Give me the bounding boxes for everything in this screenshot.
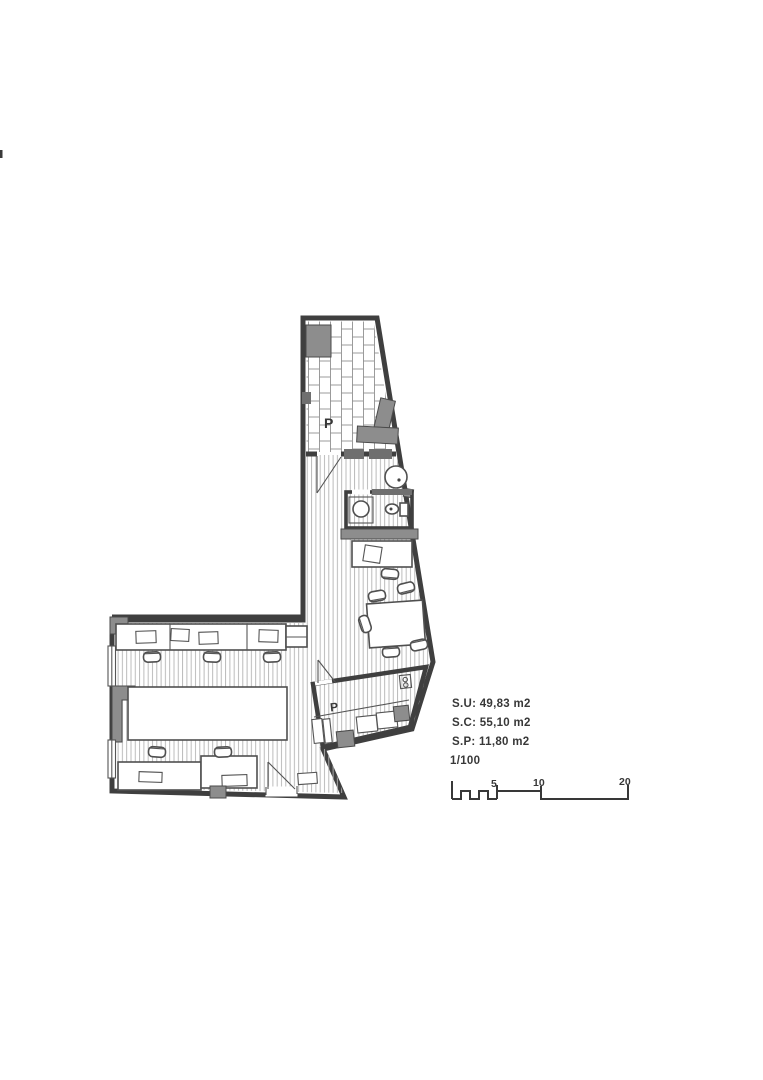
scale-battlement [452, 791, 497, 799]
counter-desk [116, 624, 286, 650]
desk [352, 541, 412, 567]
large-table [128, 687, 287, 740]
wall-pier [210, 786, 226, 798]
door-gap [266, 787, 297, 796]
scanned-floor-plan-page: P [0, 0, 763, 1080]
chair [148, 746, 166, 757]
bottom-desk [118, 762, 201, 790]
wall-segment [369, 449, 392, 459]
bottom-desk [201, 756, 257, 788]
sink-icon [353, 501, 369, 517]
useful-area-text: S.U: 49,83 m2 [452, 698, 531, 710]
chair [368, 590, 386, 603]
patio-label: P [329, 700, 338, 715]
chair [382, 646, 400, 657]
fixture [393, 705, 409, 721]
planter [306, 325, 331, 357]
chair [214, 747, 231, 758]
patio-area-text: S.P: 11,80 m2 [452, 736, 529, 748]
scale-label-20: 20 [619, 776, 631, 788]
wall-segment [344, 449, 364, 459]
fixture [356, 715, 378, 733]
scale-label-10: 10 [533, 777, 545, 789]
scan-speck [0, 150, 3, 158]
wall-pier [302, 392, 311, 404]
planter [357, 426, 399, 444]
terrace-label: P [324, 415, 333, 431]
fixture [336, 730, 355, 748]
built-area-text: S.C: 55,10 m2 [452, 717, 531, 729]
chair [143, 652, 160, 663]
scale-bar: 5 10 20 [452, 776, 631, 799]
toilet-tank [400, 503, 408, 516]
scale-line [497, 785, 628, 799]
round-table-icon [385, 466, 407, 488]
fixture [312, 719, 324, 744]
side-desk [298, 772, 318, 784]
partition-wall [341, 529, 418, 539]
table-dot [397, 478, 400, 481]
scale-label-5: 5 [491, 778, 497, 790]
chair [381, 568, 399, 579]
scale-text: 1/100 [450, 755, 480, 767]
area-annotations: S.U: 49,83 m2 S.C: 55,10 m2 S.P: 11,80 m… [450, 698, 531, 767]
floor-plan-drawing: P [0, 0, 763, 1080]
chair [263, 652, 280, 663]
chair [203, 652, 220, 663]
toilet-dot [390, 508, 393, 511]
